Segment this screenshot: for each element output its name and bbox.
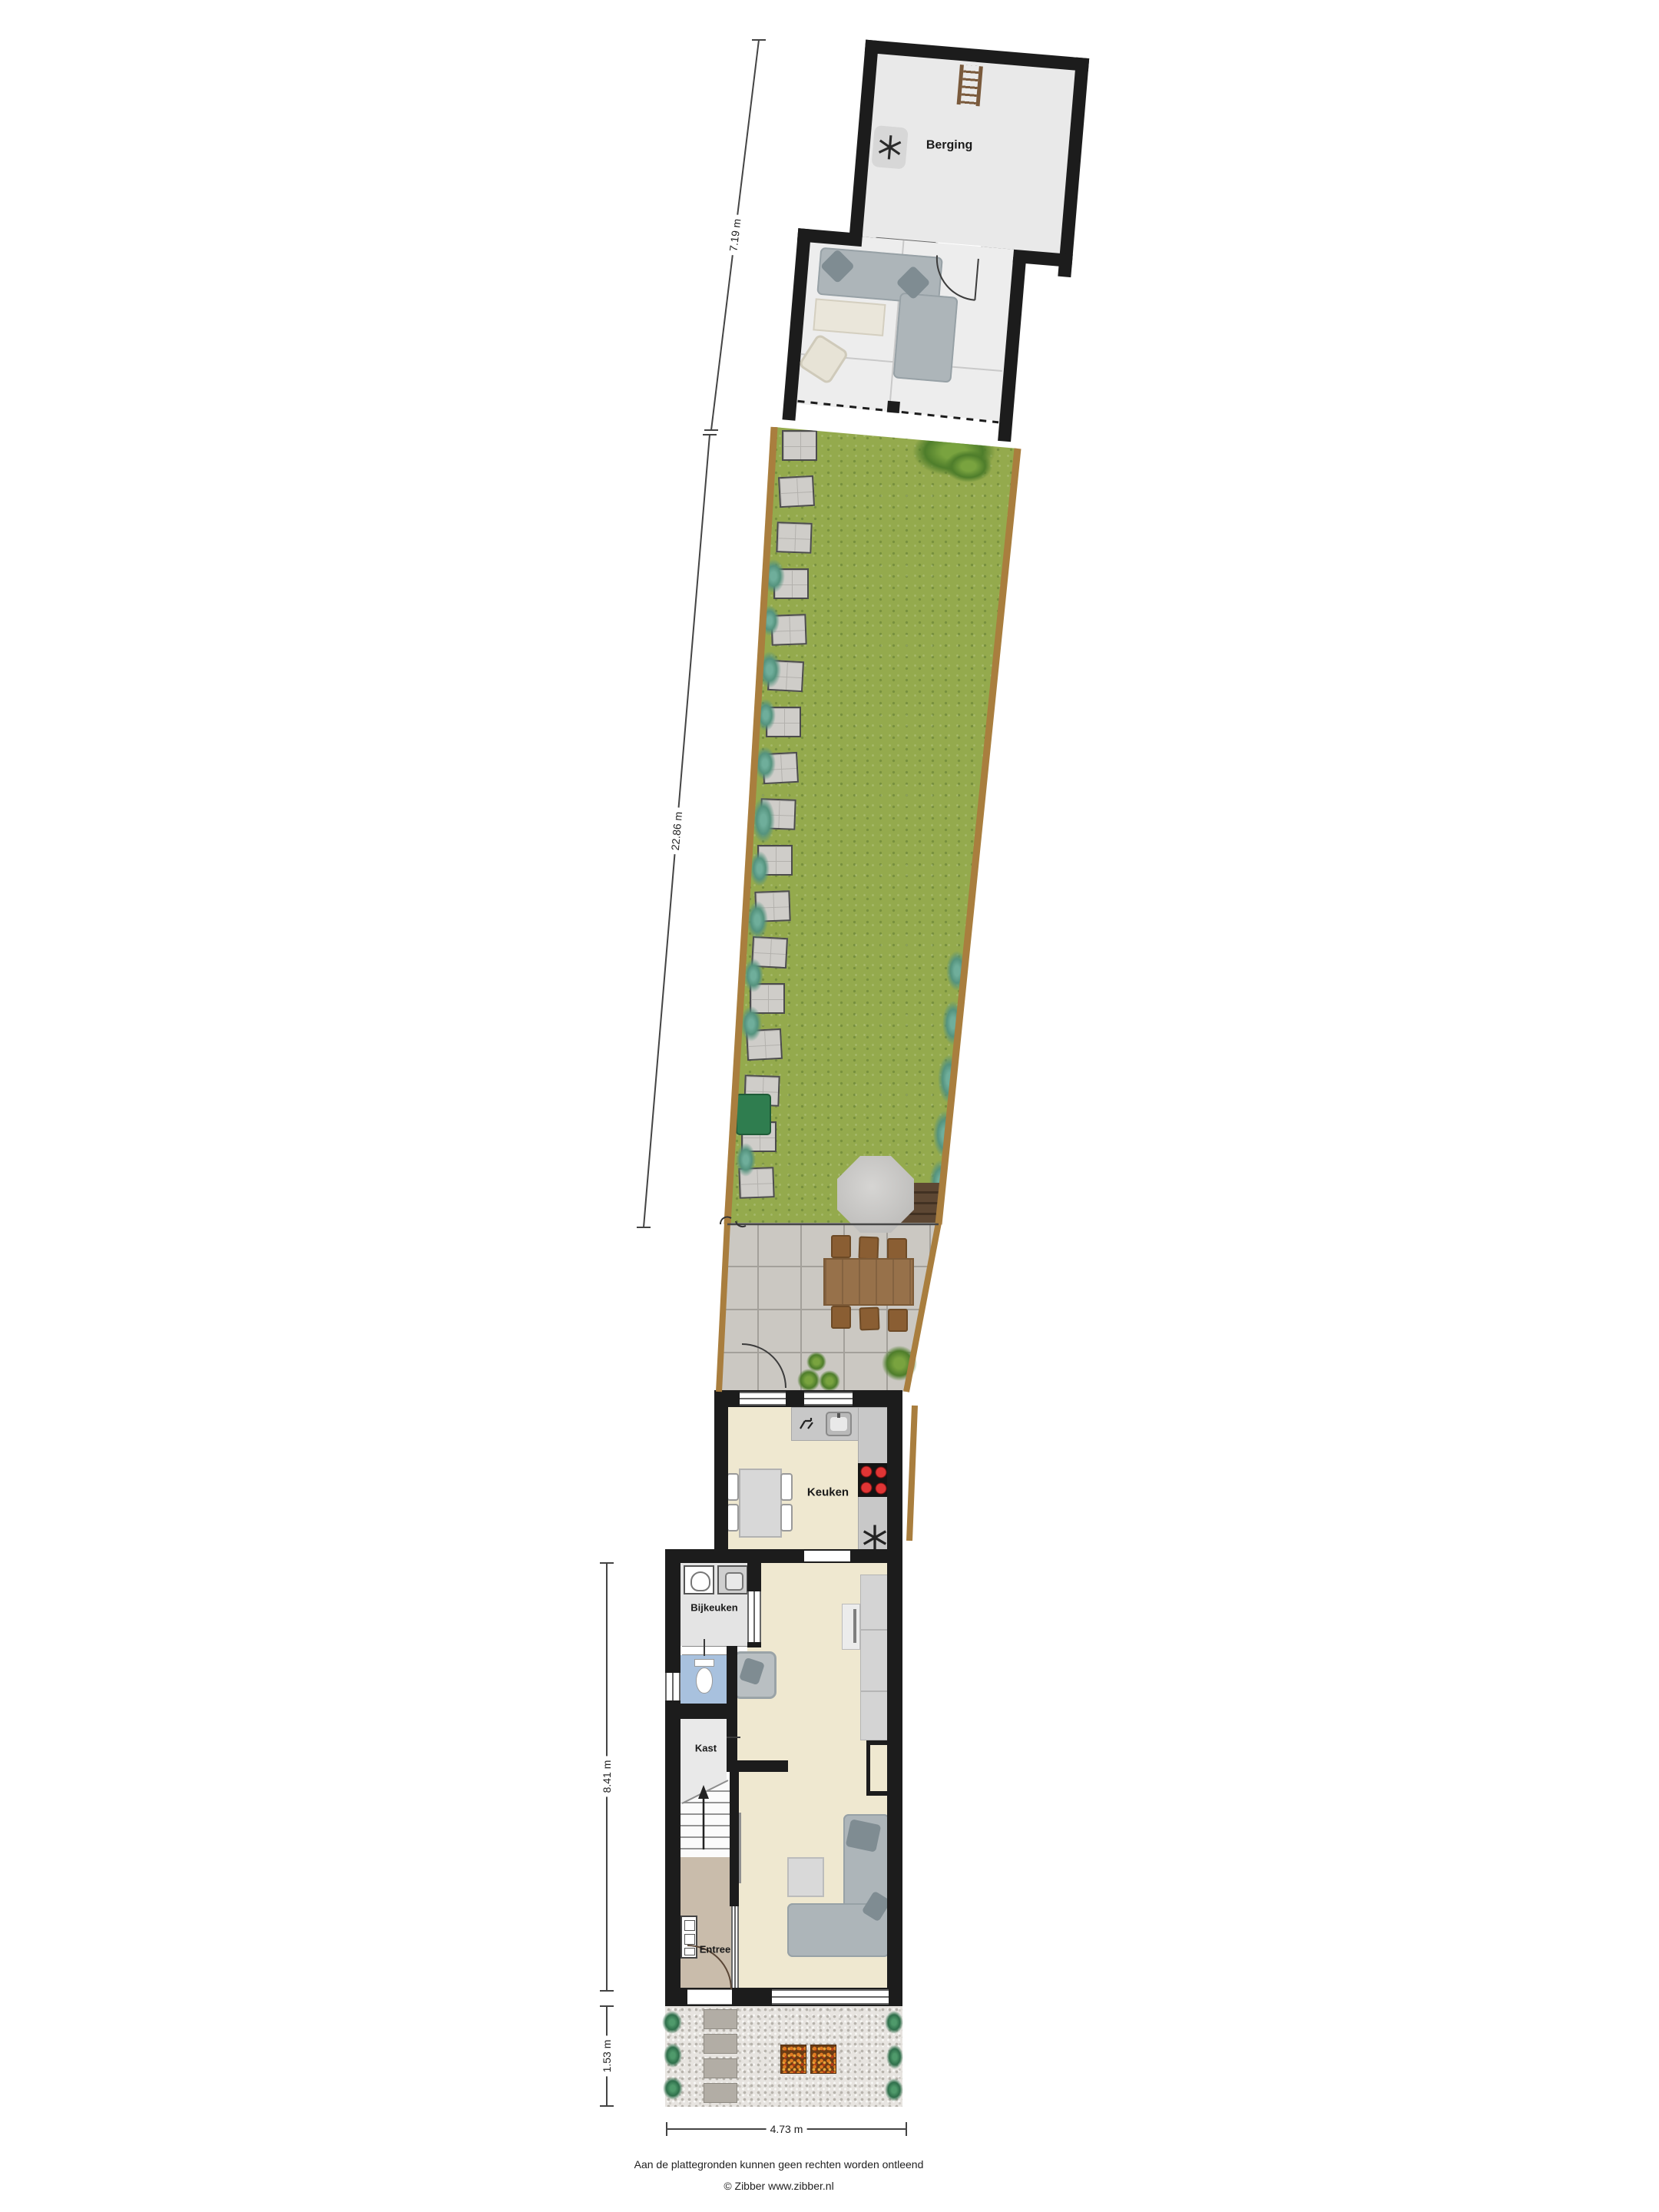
footer-disclaimer: Aan de plattegronden kunnen geen rechten… bbox=[634, 2158, 924, 2171]
dimension-plot-width: 4.73 m bbox=[767, 2123, 807, 2135]
dimension-house-depth: 8.41 m bbox=[601, 1757, 613, 1797]
room-label-entree: Entree bbox=[700, 1944, 730, 1955]
room-label-keuken: Keuken bbox=[807, 1486, 849, 1499]
room-label-kast: Kast bbox=[695, 1743, 717, 1754]
floor-plan-canvas: Berging bbox=[0, 0, 1659, 2212]
footer-credit: © Zibber www.zibber.nl bbox=[724, 2180, 833, 2192]
room-label-bijkeuken: Bijkeuken bbox=[690, 1602, 737, 1614]
dimension-front-garden-depth: 1.53 m bbox=[601, 2036, 613, 2077]
line-overlay bbox=[0, 0, 1659, 2212]
